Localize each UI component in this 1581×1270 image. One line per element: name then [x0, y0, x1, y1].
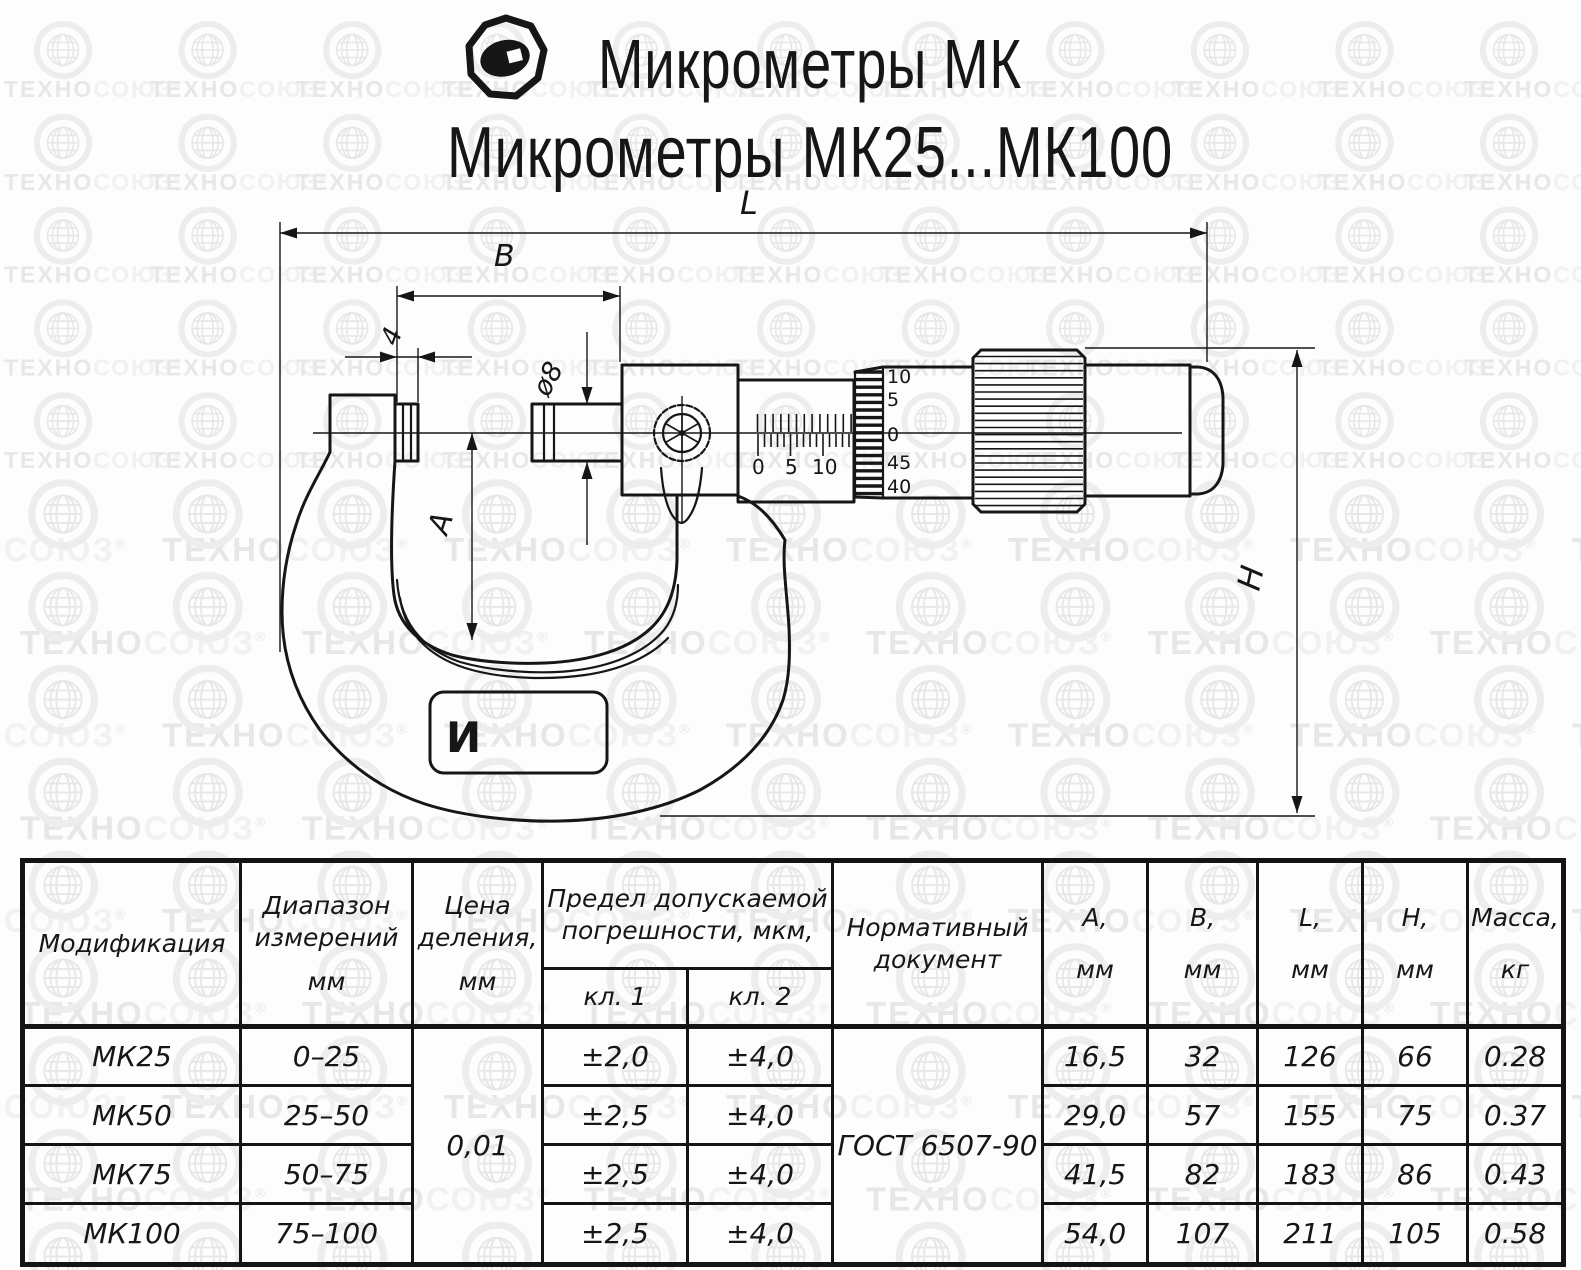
- vernier-0: 0: [887, 424, 899, 446]
- col-header-range: Диапазон измерений мм: [241, 861, 413, 1027]
- cell-cl2: ±4,0: [688, 1204, 833, 1265]
- cell-model: МК50: [23, 1086, 241, 1145]
- cell-range: 50–75: [241, 1145, 413, 1204]
- sleeve-scale-10: 10: [812, 455, 837, 479]
- table-row: МК25 0–25 0,01 ±2,0 ±4,0 ГОСТ 6507-90 16…: [23, 1027, 1564, 1086]
- sleeve-scale: [758, 414, 852, 456]
- cell-range: 75–100: [241, 1204, 413, 1265]
- dim-4-label: 4: [375, 324, 409, 350]
- dim-L-label: L: [740, 184, 758, 222]
- ratchet-cap: [1190, 367, 1223, 494]
- cell-mass: 0.37: [1468, 1086, 1564, 1145]
- vernier-5: 5: [887, 389, 899, 411]
- lock-lever: [654, 396, 710, 524]
- cell-L: 126: [1258, 1027, 1363, 1086]
- table-row: МК100 75–100 ±2,5 ±4,0 54,0 107 211 105 …: [23, 1204, 1564, 1265]
- cell-B: 82: [1148, 1145, 1258, 1204]
- cell-document-merged: ГОСТ 6507-90: [833, 1027, 1043, 1265]
- sleeve-scale-0: 0: [752, 455, 765, 479]
- dim-H-label: H: [1230, 562, 1272, 593]
- cell-cl1: ±2,0: [543, 1027, 688, 1086]
- thimble: 10 5 0 45 40: [855, 350, 1223, 512]
- col-header-L: L, мм: [1258, 861, 1363, 1027]
- cell-mass: 0.28: [1468, 1027, 1564, 1086]
- cell-H: 86: [1363, 1145, 1468, 1204]
- dim-dia8-label: ø8: [526, 357, 570, 402]
- cell-range: 0–25: [241, 1027, 413, 1086]
- sleeve-scale-5: 5: [785, 455, 798, 479]
- cell-L: 183: [1258, 1145, 1363, 1204]
- cell-A: 54,0: [1043, 1204, 1148, 1265]
- thimble-knurl: [973, 350, 1085, 512]
- col-header-division: Цена деления, мм: [413, 861, 543, 1027]
- cell-B: 57: [1148, 1086, 1258, 1145]
- cell-cl1: ±2,5: [543, 1145, 688, 1204]
- vernier-40: 40: [887, 476, 911, 498]
- cell-H: 75: [1363, 1086, 1468, 1145]
- vernier-45: 45: [887, 452, 911, 474]
- cell-H: 66: [1363, 1027, 1468, 1086]
- col-header-error: Предел допускаемой погрешности, мкм,: [543, 861, 833, 969]
- cell-mass: 0.58: [1468, 1204, 1564, 1265]
- col-header-A: А, мм: [1043, 861, 1148, 1027]
- datasheet-page: ТЕХНОСОЮЗ®ТЕХНОСОЮЗ®ТЕХНОСОЮЗ®ТЕХНОСОЮЗ®…: [0, 0, 1581, 1270]
- vernier-10: 10: [887, 366, 911, 388]
- cell-B: 32: [1148, 1027, 1258, 1086]
- cell-L: 211: [1258, 1204, 1363, 1265]
- col-header-modification: Модификация: [23, 861, 241, 1027]
- cell-cl2: ±4,0: [688, 1086, 833, 1145]
- cell-model: МК25: [23, 1027, 241, 1086]
- cell-H: 105: [1363, 1204, 1468, 1265]
- cell-cl2: ±4,0: [688, 1027, 833, 1086]
- table-row: МК50 25–50 ±2,5 ±4,0 29,0 57 155 75 0.37: [23, 1086, 1564, 1145]
- cell-range: 25–50: [241, 1086, 413, 1145]
- col-header-document: Нормативный документ: [833, 861, 1043, 1027]
- maker-mark: И: [446, 713, 481, 762]
- cell-cl2: ±4,0: [688, 1145, 833, 1204]
- technosoyuz-logo-icon: [458, 12, 554, 104]
- spec-table: Модификация Диапазон измерений мм Цена д…: [20, 858, 1566, 1267]
- dim-A-label: A: [421, 508, 461, 540]
- col-header-mass: Масса, кг: [1468, 861, 1564, 1027]
- cell-cl1: ±2,5: [543, 1086, 688, 1145]
- cell-A: 16,5: [1043, 1027, 1148, 1086]
- col-header-class2: кл. 2: [688, 969, 833, 1027]
- head-boss: [622, 365, 738, 495]
- cell-division-merged: 0,01: [413, 1027, 543, 1265]
- col-header-H: Н, мм: [1363, 861, 1468, 1027]
- col-header-B: В, мм: [1148, 861, 1258, 1027]
- cell-A: 29,0: [1043, 1086, 1148, 1145]
- col-header-class1: кл. 1: [543, 969, 688, 1027]
- dim-B-label: B: [494, 239, 515, 274]
- thimble-vernier-scale: [855, 372, 883, 494]
- cell-model: МК75: [23, 1145, 241, 1204]
- table-row: МК75 50–75 ±2,5 ±4,0 41,5 82 183 86 0.43: [23, 1145, 1564, 1204]
- dimension-lines: L B 4 ø8 A H: [280, 184, 1315, 816]
- cell-A: 41,5: [1043, 1145, 1148, 1204]
- cell-mass: 0.43: [1468, 1145, 1564, 1204]
- frame-outline: И: [282, 395, 789, 821]
- cell-B: 107: [1148, 1204, 1258, 1265]
- ratchet-body: [1085, 365, 1190, 496]
- cell-L: 155: [1258, 1086, 1363, 1145]
- cell-model: МК100: [23, 1204, 241, 1265]
- cell-cl1: ±2,5: [543, 1204, 688, 1265]
